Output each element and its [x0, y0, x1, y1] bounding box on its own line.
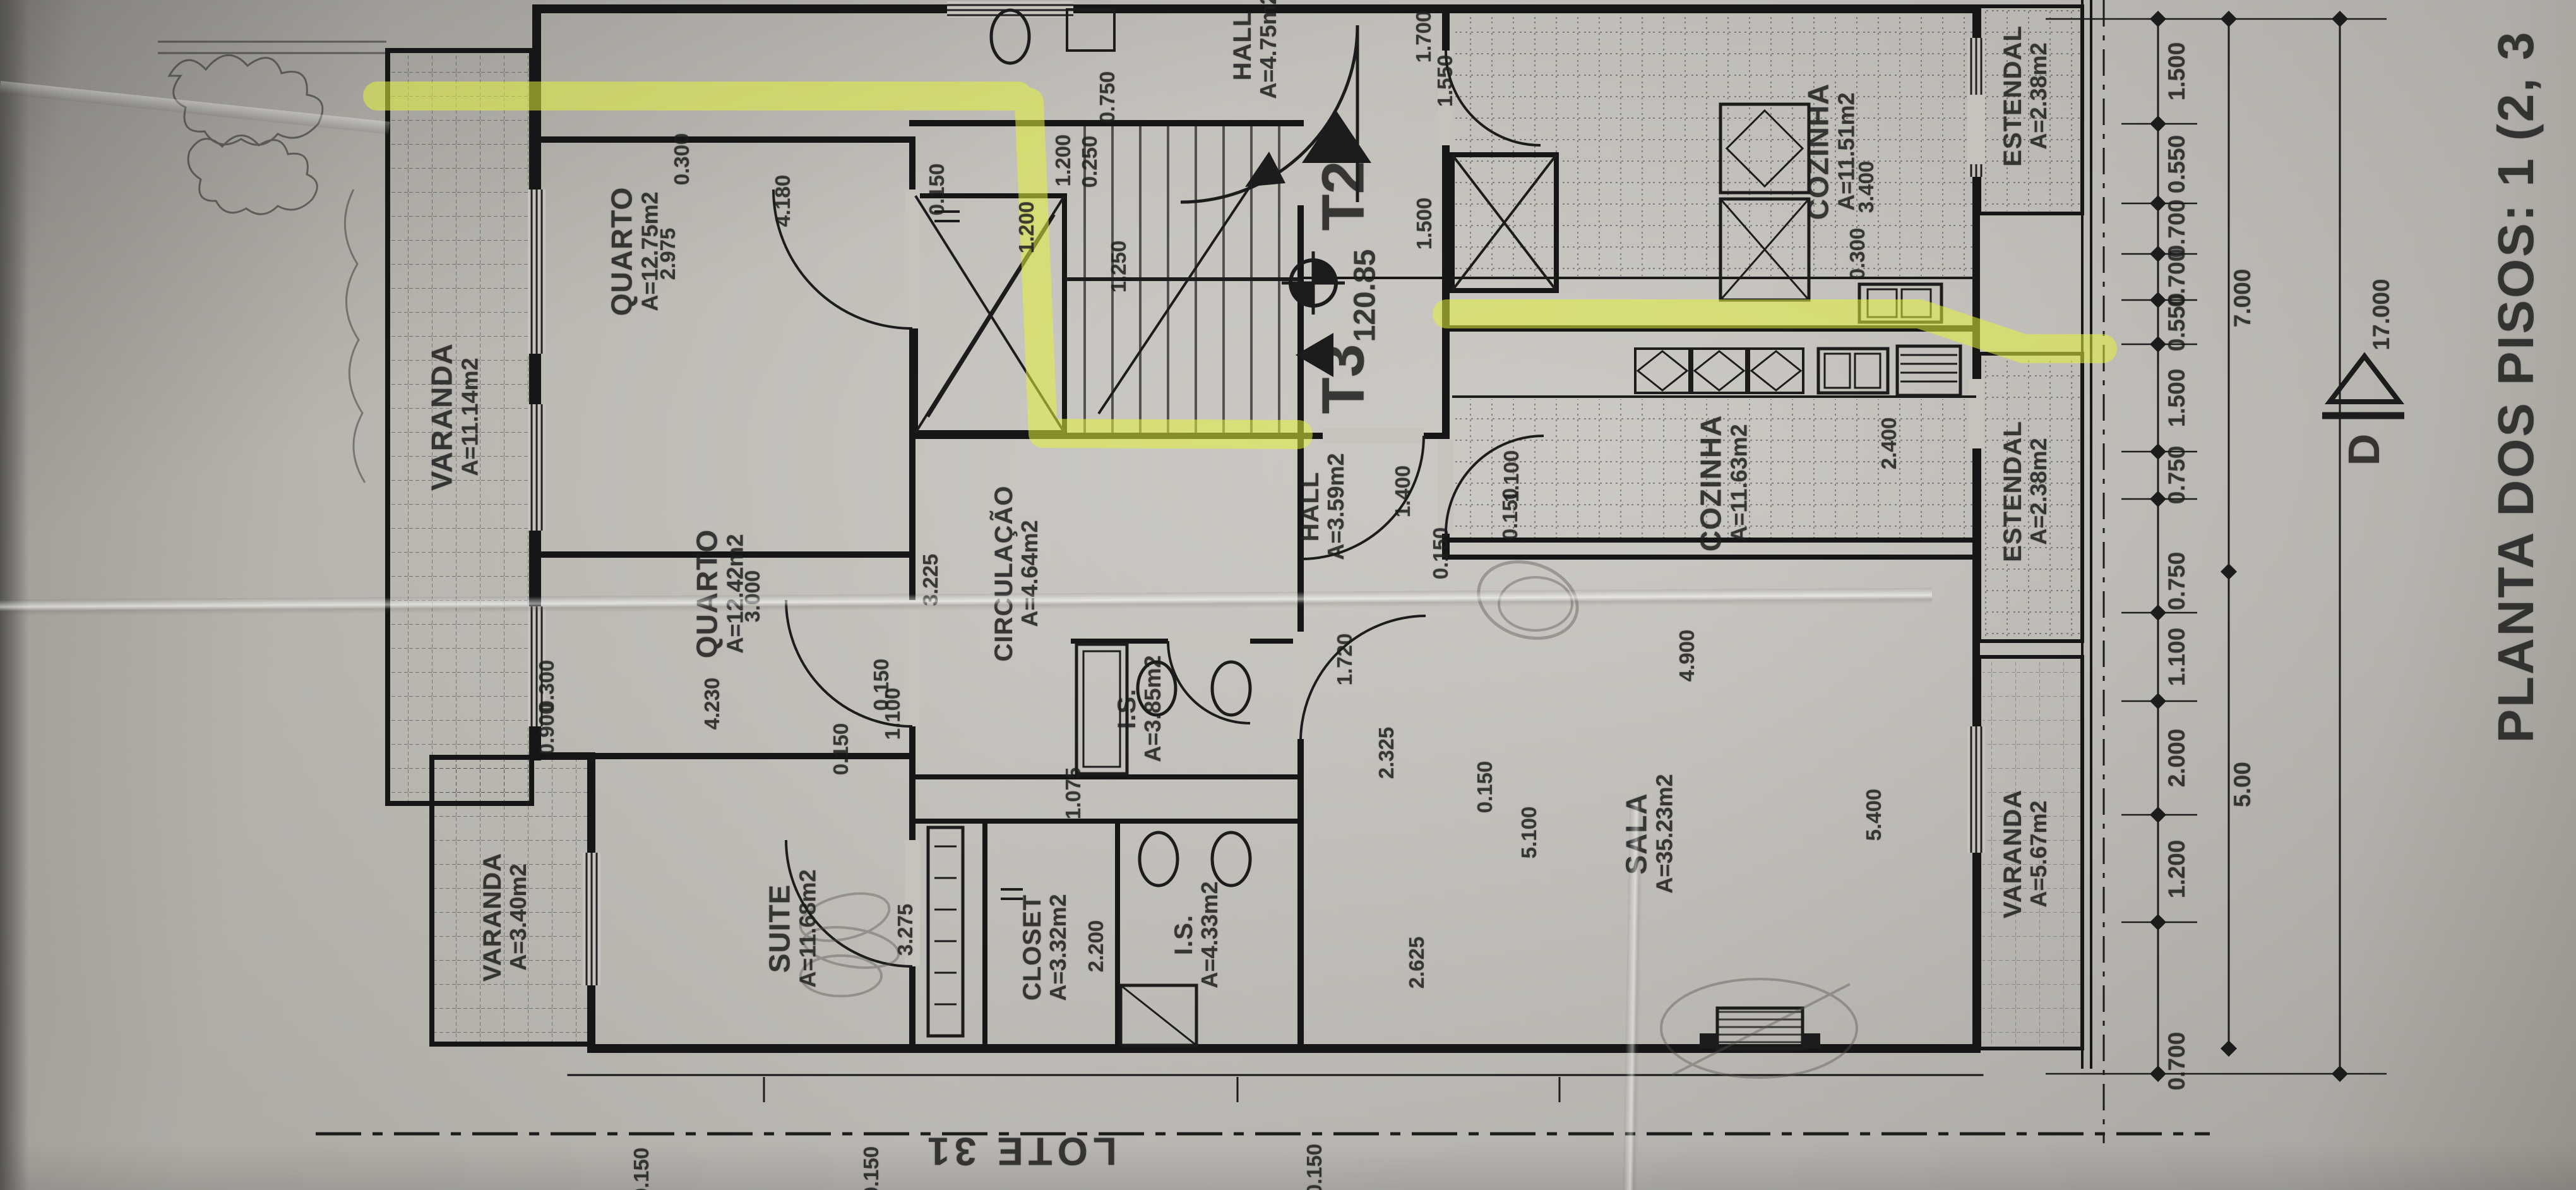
lot-label: LOTE 31 — [922, 1129, 1117, 1174]
floor-plan-photo: VARANDAA=11.14m2 QUARTOA=12.75m2 QUARTOA… — [0, 0, 2576, 1190]
dim-label: 0.150 — [925, 164, 949, 216]
room-label-is-2: I.S.A=4.33m2 — [1171, 881, 1222, 988]
dim-label: 0.250 — [1078, 136, 1102, 188]
dimension-chains — [2046, 11, 2387, 1082]
dim-label: 2.625 — [1405, 937, 1429, 989]
room-label-closet: CLOSETA=3.32m2 — [1019, 894, 1071, 1001]
room-label-hall-t3: HALLA=3.59m2 — [1297, 453, 1349, 560]
chain-dim: 2.000 — [2164, 729, 2190, 788]
dim-label: 4.230 — [700, 678, 724, 730]
room-label-varanda-bottom: VARANDAA=3.40m2 — [479, 853, 531, 982]
section-marker-d — [2322, 356, 2404, 416]
room-label-quarto-2: QUARTOA=12.42m2 — [692, 529, 748, 659]
dim-label: 1.400 — [1391, 466, 1415, 518]
dim-label: 1.550 — [1433, 55, 1457, 107]
chain-dim: 17.000 — [2368, 279, 2395, 350]
dim-label: 5.100 — [1517, 807, 1541, 859]
dim-label: 4.900 — [1675, 630, 1699, 682]
room-label-circulacao: CIRCULAÇÃOA=4.64m2 — [991, 486, 1042, 662]
room-label-quarto-1: QUARTOA=12.75m2 — [607, 187, 663, 316]
chain-dim: 0.550 — [2164, 293, 2190, 352]
room-label-estendal-top: ESTENDALA=2.38m2 — [2000, 25, 2051, 167]
dim-label: 2.325 — [1374, 727, 1398, 779]
unit-label-t2: T2 — [1309, 161, 1378, 231]
dim-label: 0.300 — [670, 133, 694, 186]
dim-label: 1.250 — [1107, 241, 1131, 293]
dim-label: 1.200 — [1015, 201, 1039, 254]
chain-dim: 0.550 — [2164, 135, 2190, 194]
chain-dim: 0.750 — [2164, 446, 2190, 505]
dim-label: 0.300 — [1846, 228, 1869, 280]
dim-label: 1.720 — [1333, 634, 1357, 686]
room-label-suite: SUITEA=11.68m2 — [765, 869, 821, 987]
room-label-cozinha-t3: COZINHAA=11.63m2 — [1696, 415, 1752, 552]
chain-dim: 0.700 — [2164, 1032, 2190, 1091]
plan-title: PLANTA DOS PISOS: 1 (2, 3 — [2487, 30, 2545, 743]
dim-label: 1.500 — [1412, 198, 1436, 250]
dim-label: 4.180 — [771, 175, 795, 227]
room-label-hall-t2: HALLA=4.75m2 — [1229, 0, 1281, 99]
room-label-cozinha-t2: COZINHAA=11.51m2 — [1803, 83, 1859, 220]
dim-label: 0.150 — [1498, 488, 1522, 541]
dim-label: 1.075 — [1061, 767, 1085, 820]
chain-dim: 1.500 — [2164, 42, 2190, 101]
dim-label: 1.200 — [1051, 135, 1075, 187]
chain-dim: 7.000 — [2229, 269, 2256, 328]
dim-label: 5.400 — [1862, 789, 1886, 841]
dim-label: 0.900 — [535, 703, 559, 755]
dim-label: 0.150 — [629, 1148, 653, 1190]
chain-dim: 0.750 — [2164, 552, 2190, 611]
dim-label: 1.100 — [881, 688, 905, 740]
chain-dim: 1.500 — [2164, 369, 2190, 428]
dim-label: 3.400 — [1854, 161, 1878, 213]
dim-label: 0.150 — [829, 723, 853, 776]
chain-dim: 5.00 — [2229, 762, 2256, 807]
dim-label: 0.150 — [1303, 1144, 1327, 1190]
dim-label: 0.150 — [1473, 761, 1497, 814]
chain-dim: 1.100 — [2164, 628, 2190, 687]
room-label-is-1: I.S.A=3.85m2 — [1114, 655, 1166, 762]
dim-label: 2.200 — [1084, 920, 1108, 973]
room-label-estendal-right: ESTENDALA=2.38m2 — [2000, 421, 2051, 562]
dim-label: 2.975 — [656, 228, 680, 280]
unit-label-t3: T3 — [1309, 344, 1378, 414]
dim-label: 0.150 — [1429, 527, 1453, 580]
room-label-varanda-left: VARANDAA=11.14m2 — [427, 343, 483, 491]
room-label-varanda-right: VARANDAA=5.67m2 — [2000, 790, 2051, 918]
dim-label: 0.150 — [859, 1146, 883, 1190]
dim-label: 3.275 — [893, 904, 917, 956]
chain-dim: 1.200 — [2164, 840, 2190, 899]
t2-arrow-icon — [1302, 111, 1371, 163]
elevation-label: 120.85 — [1348, 249, 1383, 342]
dim-label: 0.750 — [1095, 71, 1119, 124]
section-letter-d: D — [2339, 434, 2389, 466]
dim-label: 1.700 — [1412, 11, 1436, 63]
dim-label: 2.400 — [1877, 418, 1901, 470]
